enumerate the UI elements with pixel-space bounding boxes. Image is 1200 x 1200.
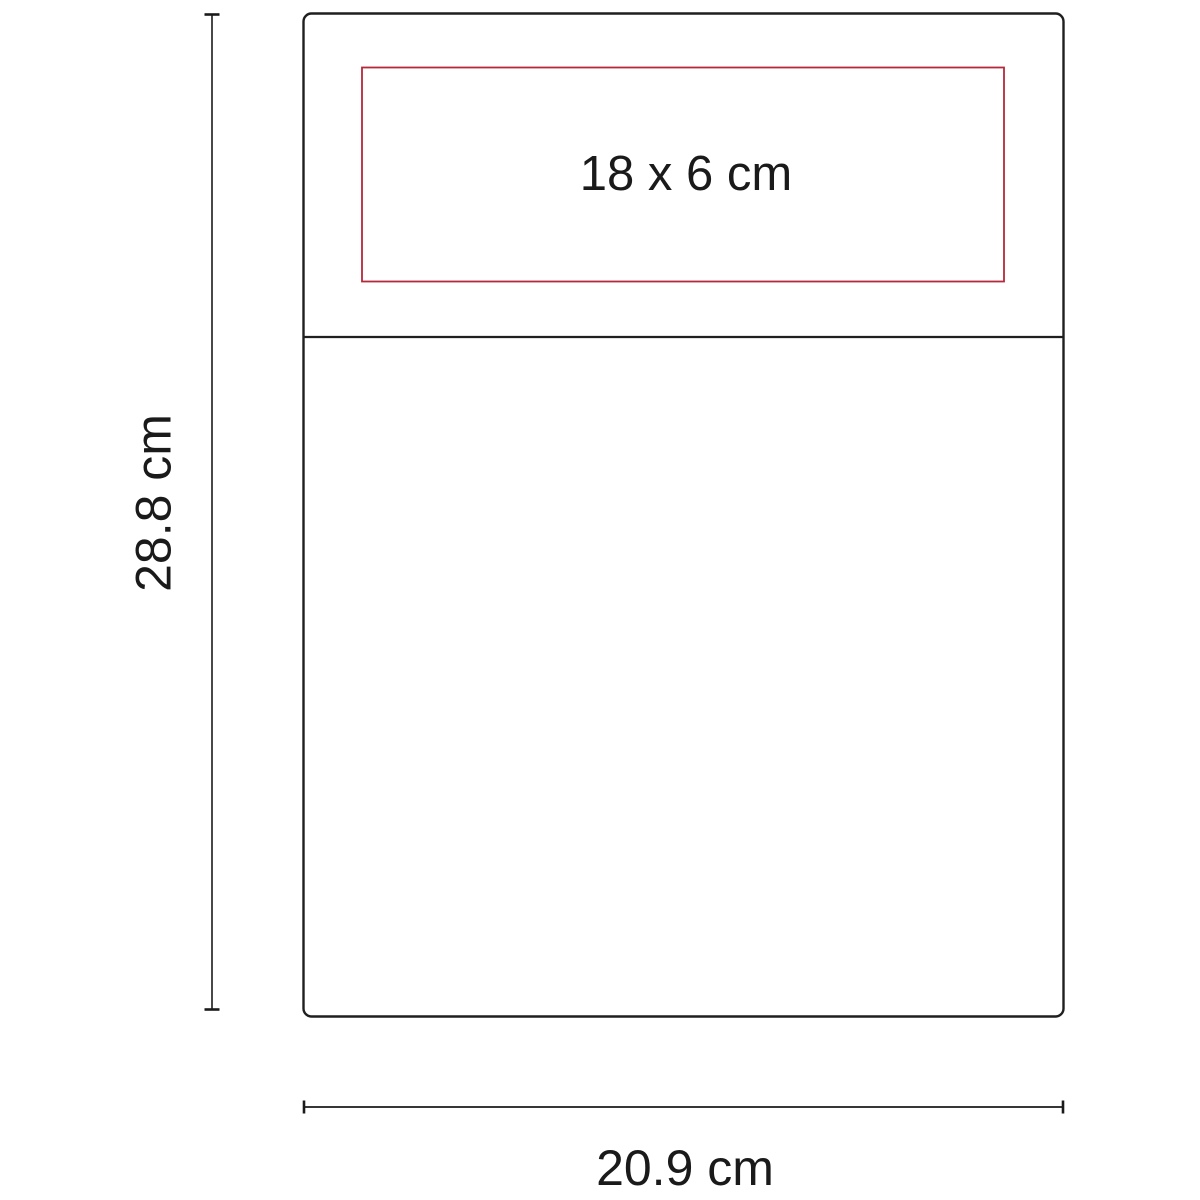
svg-text:18 x 6 cm: 18 x 6 cm bbox=[580, 147, 792, 201]
svg-text:20.9 cm: 20.9 cm bbox=[596, 1140, 774, 1196]
svg-text:28.8 cm: 28.8 cm bbox=[126, 414, 182, 592]
